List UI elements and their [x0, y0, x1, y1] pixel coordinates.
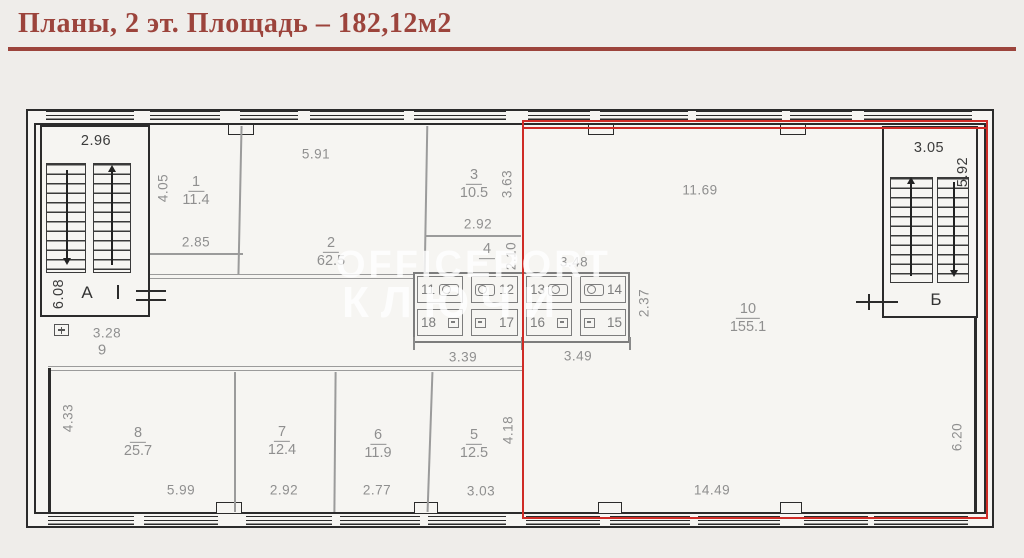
stair-arrow-up-icon: [108, 165, 116, 172]
window-segment: [150, 111, 220, 120]
window-segment: [246, 516, 332, 525]
wall-room1-south: [150, 253, 243, 255]
lift-icon: [54, 324, 69, 336]
dim-stair-a-height: 6.08: [51, 279, 67, 309]
dim-entry-a: 3.28: [93, 326, 121, 341]
window-segment: [414, 111, 506, 120]
room-8-label: 8 25.7: [124, 425, 152, 459]
wall-room3-south: [425, 235, 521, 237]
dim-wc-left: 3.39: [449, 350, 477, 365]
window-segment: [46, 111, 134, 120]
door-leaf-mark: [117, 285, 119, 299]
window-segment: [48, 516, 134, 525]
watermark-line2: КЛЮЧИ: [342, 278, 567, 328]
stairwell-a-label: А: [81, 283, 92, 303]
window-segment: [696, 111, 782, 120]
window-segment: [528, 111, 590, 120]
dim-room1-depth: 4.05: [156, 174, 171, 202]
dim-room5-depth: 4.18: [501, 416, 516, 444]
window-segment: [240, 111, 298, 120]
dim-room7-width: 2.92: [270, 483, 298, 498]
highlight-outline: [522, 120, 988, 519]
dim-room5-width: 3.03: [467, 484, 495, 499]
dim-room8-depth: 4.33: [61, 404, 76, 432]
room-6-label: 6 11.9: [364, 427, 391, 461]
stair-direction-line: [66, 170, 68, 258]
room-5-label: 5 12.5: [460, 427, 488, 461]
page-title: Планы, 2 эт. Площадь – 182,12м2: [18, 8, 452, 40]
stair-arrow-down-icon: [63, 258, 71, 265]
door-tick: [136, 290, 166, 292]
inner-wall-left: [34, 123, 36, 514]
window-segment: [790, 111, 852, 120]
title-rule: [8, 47, 1016, 51]
window-segment: [144, 516, 218, 525]
highlight-inner-line: [524, 127, 986, 129]
corridor-wall-south: [48, 366, 522, 371]
dim-room3-depth: 3.63: [500, 170, 515, 198]
room-9-label: 9: [98, 341, 106, 358]
dim-room8-width: 5.99: [167, 483, 195, 498]
dim-stair-a-width: 2.96: [81, 133, 111, 149]
window-segment: [310, 111, 404, 120]
dim-room1-width: 2.85: [182, 235, 210, 250]
partition-room8-room7: [234, 372, 236, 512]
window-segment: [864, 111, 972, 120]
window-segment: [600, 111, 688, 120]
room-1-label: 1 11.4: [182, 174, 209, 208]
dim-room2-width: 5.91: [302, 147, 330, 162]
room-7-label: 7 12.4: [268, 424, 296, 458]
window-segment: [340, 516, 420, 525]
room-3-label: 3 10.5: [460, 167, 488, 201]
wall-room8-west: [48, 368, 51, 514]
dim-tick: [413, 337, 415, 350]
dim-room6-width: 2.77: [363, 483, 391, 498]
dim-room3-width: 2.92: [464, 217, 492, 232]
door-tick: [136, 299, 166, 301]
pilaster: [216, 502, 242, 514]
stair-direction-line: [111, 172, 113, 265]
window-segment: [428, 516, 506, 525]
